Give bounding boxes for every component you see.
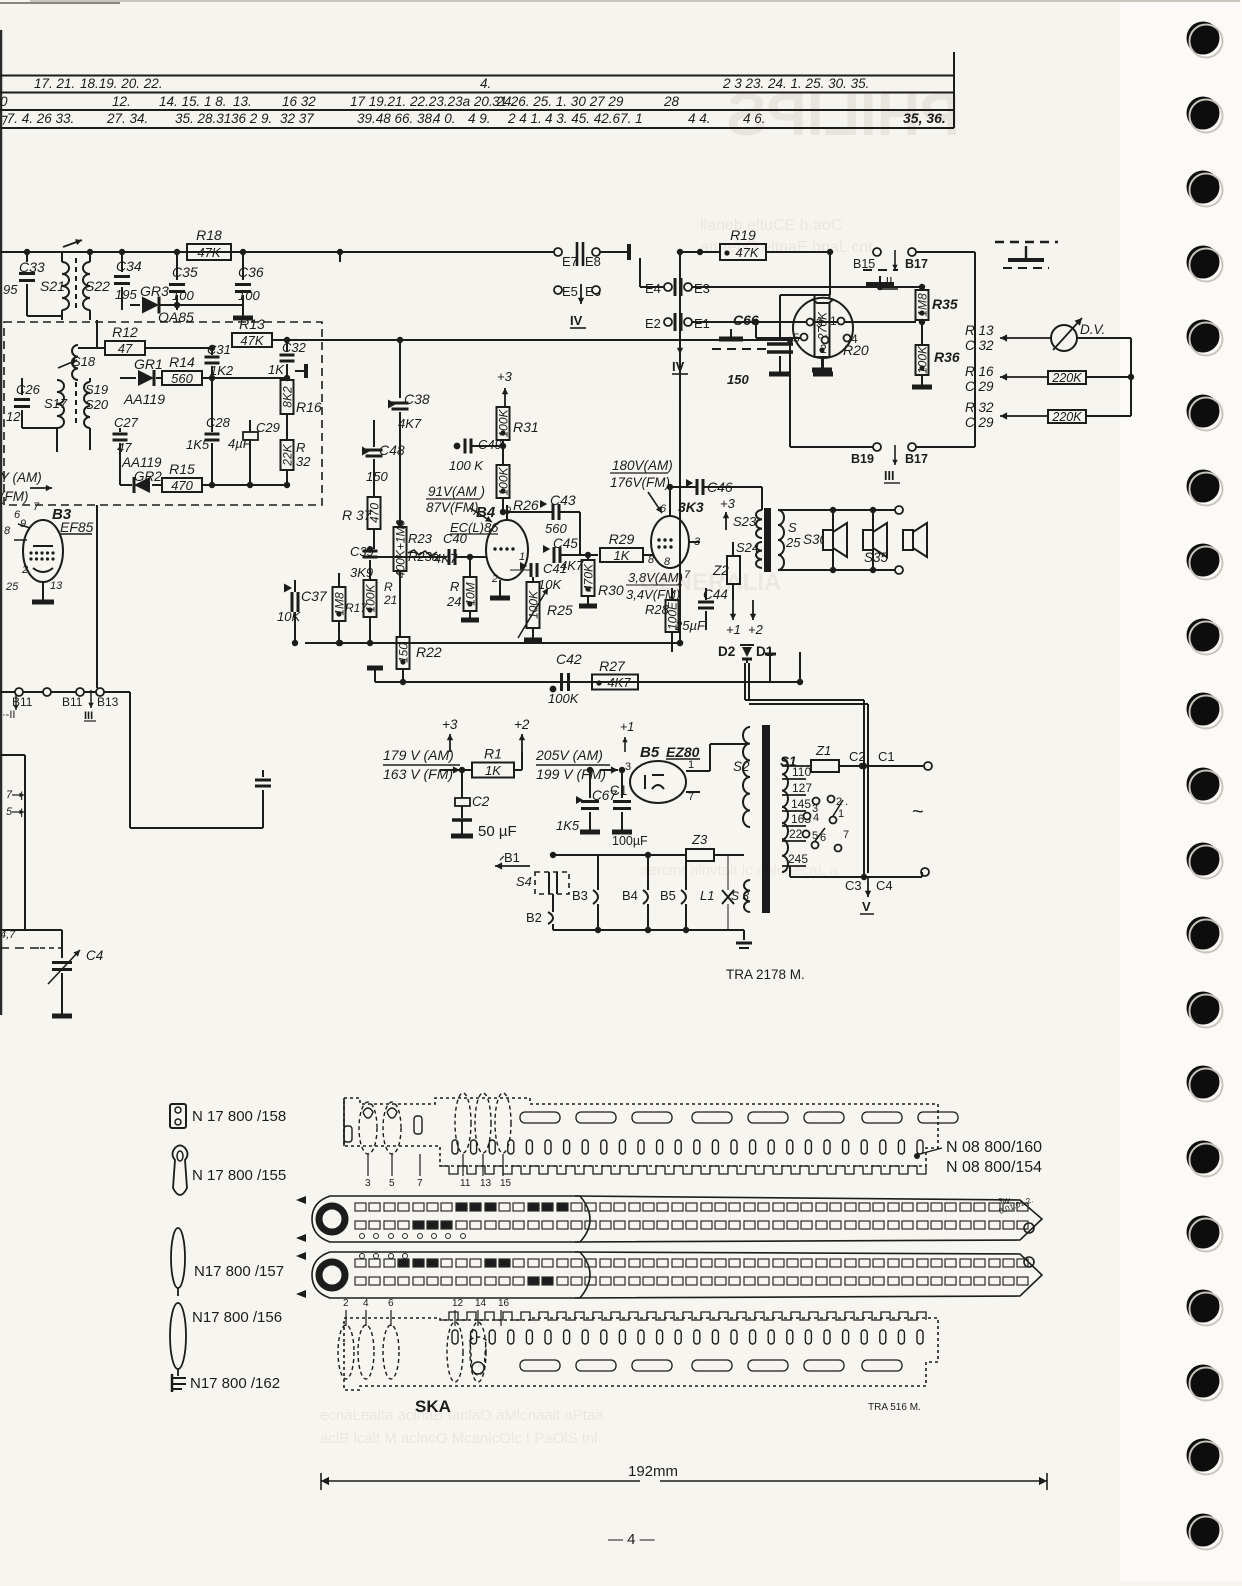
- svg-text:R14: R14: [169, 354, 195, 370]
- svg-text:N17 800 /156: N17 800 /156: [192, 1309, 282, 1326]
- svg-text:S21: S21: [40, 278, 65, 294]
- svg-text:R: R: [450, 579, 459, 594]
- svg-text:4 4.: 4 4.: [688, 111, 711, 126]
- svg-text:50 µF: 50 µF: [478, 823, 517, 840]
- svg-text:47K: 47K: [735, 245, 759, 260]
- svg-text:C 32: C 32: [965, 338, 994, 353]
- svg-text:E4: E4: [645, 281, 661, 296]
- svg-text:25µF: 25µF: [674, 618, 706, 633]
- svg-text:245: 245: [788, 852, 808, 866]
- svg-text:R: R: [296, 440, 305, 455]
- svg-text:1: 1: [830, 314, 837, 328]
- svg-text:21: 21: [383, 593, 397, 607]
- svg-text:12: 12: [6, 409, 21, 424]
- svg-text:4: 4: [363, 1298, 369, 1309]
- svg-text:N17 800 /157: N17 800 /157: [194, 1263, 284, 1280]
- svg-text:C37: C37: [301, 588, 328, 604]
- svg-text:195: 195: [115, 287, 137, 302]
- svg-text:400K+1M6: 400K+1M6: [394, 519, 408, 578]
- svg-text:100: 100: [238, 288, 260, 303]
- svg-text:7: 7: [843, 829, 849, 841]
- svg-text:8: 8: [664, 556, 671, 568]
- svg-text:39.48 66. 38.: 39.48 66. 38.: [357, 111, 436, 126]
- svg-text:3: 3: [365, 1178, 371, 1189]
- svg-text:1: 1: [519, 551, 525, 563]
- svg-text:2 4 1.: 2 4 1.: [507, 111, 542, 126]
- svg-text:16: 16: [498, 1298, 510, 1309]
- svg-text:11: 11: [460, 1178, 471, 1189]
- svg-text:C36: C36: [238, 264, 264, 280]
- svg-text:2: 2: [21, 564, 28, 576]
- svg-text:GR1: GR1: [134, 356, 163, 372]
- svg-text:2 3 23. 24. 1. 25. 30.: 2 3 23. 24. 1. 25. 30. 35.: [722, 76, 869, 91]
- svg-text:B15: B15: [853, 257, 875, 271]
- svg-text:IV: IV: [570, 313, 583, 328]
- svg-text:4: 4: [851, 332, 858, 346]
- svg-text:E8: E8: [585, 254, 601, 269]
- svg-text:Z3: Z3: [691, 832, 708, 847]
- svg-text:R 13: R 13: [965, 323, 994, 338]
- svg-text:28: 28: [663, 94, 680, 109]
- svg-text:B13: B13: [97, 695, 119, 709]
- svg-text:14: 14: [475, 1298, 487, 1309]
- svg-text:+1: +1: [620, 720, 634, 734]
- svg-text:4 3. 45. 42.67. 1: 4 3. 45. 42.67. 1: [545, 111, 643, 126]
- svg-text:199 V (FM): 199 V (FM): [536, 766, 606, 782]
- svg-text:N17 800 /162: N17 800 /162: [190, 1375, 280, 1392]
- svg-text:B11: B11: [62, 695, 83, 709]
- svg-text:2: 2: [343, 1298, 349, 1309]
- svg-text:35. 28.31: 35. 28.31: [175, 111, 231, 126]
- svg-text:47K: 47K: [240, 333, 264, 348]
- svg-text:EZ80: EZ80: [666, 744, 700, 760]
- svg-text:B17: B17: [905, 257, 928, 271]
- svg-text:3: 3: [816, 316, 823, 330]
- svg-text:V: V: [862, 899, 871, 914]
- svg-text:S19: S19: [85, 382, 108, 397]
- svg-text:100: 100: [172, 288, 194, 303]
- svg-text:3,8V(AM): 3,8V(AM): [628, 570, 683, 585]
- svg-text:+1: +1: [726, 622, 741, 637]
- svg-text:C48: C48: [379, 442, 405, 458]
- svg-text:C28: C28: [206, 415, 231, 430]
- svg-text:4µF: 4µF: [228, 436, 252, 451]
- svg-text:C27: C27: [114, 415, 139, 430]
- svg-text:150: 150: [366, 469, 388, 484]
- svg-text:+3: +3: [497, 369, 513, 384]
- svg-text:4.: 4.: [480, 76, 491, 91]
- svg-text:192mm: 192mm: [628, 1463, 678, 1480]
- svg-text:R29: R29: [609, 531, 635, 547]
- svg-text:8K2: 8K2: [281, 386, 295, 408]
- svg-text:TRA 2178 M.: TRA 2178 M.: [726, 967, 805, 982]
- svg-text:S23: S23: [733, 514, 757, 529]
- svg-text:llaneb eltuCE b.aoC: llaneb eltuCE b.aoC: [700, 217, 842, 234]
- svg-text:B1: B1: [504, 850, 520, 865]
- svg-text:S17: S17: [44, 396, 68, 411]
- svg-text:14. 15. 1 8.: 14. 15. 1 8.: [159, 94, 227, 109]
- svg-text:100µF: 100µF: [612, 834, 648, 848]
- svg-text:4,7: 4,7: [0, 929, 16, 941]
- svg-text:B4: B4: [622, 888, 638, 903]
- svg-text:ecnaLealta aclnaB tanlaO aM: ecnaLealta aclnaB tanlaO aMlcnaalt aPtaa: [320, 1407, 604, 1424]
- svg-text:47: 47: [118, 341, 133, 356]
- svg-text:9: 9: [20, 518, 26, 530]
- svg-text:AA119: AA119: [121, 455, 162, 470]
- svg-text:1K5: 1K5: [556, 818, 580, 833]
- svg-text:TRA 516 M.: TRA 516 M.: [868, 1402, 921, 1413]
- svg-text:1K5: 1K5: [186, 437, 210, 452]
- svg-text:+3: +3: [442, 717, 458, 732]
- svg-text:2: 2: [820, 342, 827, 356]
- svg-text:47: 47: [117, 440, 132, 455]
- svg-text:— 4 —: — 4 —: [608, 1531, 655, 1548]
- svg-text:R15: R15: [169, 461, 195, 477]
- svg-text:13: 13: [50, 580, 63, 592]
- svg-text:R26: R26: [513, 497, 539, 513]
- svg-text:22K: 22K: [281, 443, 295, 466]
- svg-text:B19: B19: [851, 452, 874, 466]
- svg-text:R22: R22: [416, 644, 442, 660]
- svg-text:S20: S20: [85, 397, 109, 412]
- svg-text:S35: S35: [864, 550, 889, 565]
- svg-text:C35: C35: [172, 264, 198, 280]
- svg-text:205V (AM): 205V (AM): [535, 747, 603, 763]
- svg-text:S2: S2: [733, 759, 750, 774]
- svg-text:C 29: C 29: [965, 415, 994, 430]
- svg-text:560: 560: [171, 371, 193, 386]
- svg-text:C42: C42: [556, 651, 582, 667]
- svg-text:180V(AM): 180V(AM): [612, 458, 673, 473]
- svg-text:N 08 800/160: N 08 800/160: [946, 1139, 1042, 1156]
- svg-text:17 19.21. 22.23.23a 20. 24.: 17 19.21. 22.23.23a 20. 24.: [350, 94, 515, 109]
- svg-text:47K: 47K: [197, 245, 221, 260]
- svg-text:220K: 220K: [1051, 371, 1082, 385]
- svg-text:AA119: AA119: [123, 391, 165, 407]
- svg-text:D.V.: D.V.: [1080, 322, 1105, 337]
- svg-text:32 37: 32 37: [280, 111, 314, 126]
- svg-text:+3: +3: [720, 496, 736, 511]
- svg-text:N 17 800 /155: N 17 800 /155: [192, 1167, 286, 1184]
- svg-text:15: 15: [500, 1178, 512, 1189]
- svg-text:+2: +2: [514, 717, 530, 732]
- svg-text:4K7: 4K7: [560, 558, 584, 573]
- svg-text:4K7: 4K7: [398, 416, 422, 431]
- svg-text:C31: C31: [207, 342, 231, 357]
- svg-text:12: 12: [452, 1298, 464, 1309]
- svg-text:C32: C32: [282, 340, 307, 355]
- svg-text:1K: 1K: [614, 548, 631, 563]
- svg-text:C2: C2: [849, 749, 866, 764]
- svg-text:C49: C49: [478, 437, 502, 452]
- svg-text:7: 7: [6, 789, 13, 801]
- svg-text:C4: C4: [86, 948, 103, 963]
- svg-text:GR2: GR2: [134, 469, 162, 484]
- svg-text:C2: C2: [472, 794, 490, 809]
- svg-text:III: III: [84, 710, 93, 722]
- svg-text:R23: R23: [408, 531, 433, 546]
- svg-text:C4: C4: [876, 878, 893, 893]
- svg-text:S: S: [788, 520, 797, 535]
- svg-text:Y (AM): Y (AM): [0, 470, 42, 485]
- svg-text:D2: D2: [718, 644, 735, 659]
- svg-text:C33: C33: [19, 259, 45, 275]
- svg-text:S4: S4: [516, 874, 532, 889]
- svg-text:R12: R12: [112, 324, 138, 340]
- svg-text:C38: C38: [404, 391, 430, 407]
- svg-text:91V(AM ): 91V(AM ): [428, 484, 485, 499]
- svg-text:+2: +2: [748, 622, 764, 637]
- svg-text:N 17 800 /158: N 17 800 /158: [192, 1108, 286, 1125]
- svg-text:1K: 1K: [485, 763, 502, 778]
- svg-text:C44: C44: [703, 587, 728, 602]
- svg-text:~: ~: [912, 801, 924, 823]
- svg-text:R31: R31: [513, 419, 539, 435]
- svg-text:1K: 1K: [268, 362, 285, 377]
- svg-text:560: 560: [545, 521, 567, 536]
- svg-text:R 32: R 32: [965, 400, 994, 415]
- svg-text:176V(FM): 176V(FM): [610, 475, 670, 490]
- svg-text:35, 36.: 35, 36.: [903, 110, 946, 126]
- svg-text:C34: C34: [116, 258, 142, 274]
- svg-text:27. 34.: 27. 34.: [106, 111, 148, 126]
- svg-text:GR3: GR3: [140, 283, 169, 299]
- svg-text:R27: R27: [599, 658, 626, 674]
- svg-text:R36: R36: [934, 349, 960, 365]
- svg-text:8: 8: [4, 525, 11, 537]
- svg-text:N 08 800/154: N 08 800/154: [946, 1159, 1042, 1176]
- svg-text:2: 2: [491, 573, 498, 585]
- svg-text:C45: C45: [553, 536, 578, 551]
- svg-text:100 K: 100 K: [449, 458, 484, 473]
- svg-text:C29: C29: [256, 420, 280, 435]
- svg-text:(FM): (FM): [0, 489, 28, 504]
- svg-text:6: 6: [660, 503, 667, 515]
- svg-text:7: 7: [33, 501, 40, 513]
- svg-text:17. 21.: 17. 21.: [34, 76, 75, 91]
- svg-text:1: 1: [838, 808, 844, 820]
- svg-text:R28: R28: [645, 602, 670, 617]
- svg-text:SKA: SKA: [415, 1397, 451, 1416]
- svg-text:32: 32: [296, 454, 311, 469]
- svg-text:3: 3: [625, 761, 631, 773]
- svg-text:R25: R25: [547, 602, 573, 618]
- svg-text:16 32: 16 32: [282, 94, 316, 109]
- svg-text:IV: IV: [672, 359, 685, 374]
- svg-text:D1: D1: [756, 644, 774, 659]
- svg-text:4: 4: [813, 812, 819, 824]
- svg-text:E1: E1: [694, 316, 710, 331]
- svg-text:4 6.: 4 6.: [743, 111, 766, 126]
- svg-text:5: 5: [389, 1178, 395, 1189]
- svg-text:3K3: 3K3: [678, 499, 704, 515]
- svg-text:S24: S24: [736, 540, 759, 555]
- svg-text:B5: B5: [640, 744, 660, 761]
- svg-text:127: 127: [792, 781, 812, 795]
- svg-text:12.: 12.: [112, 94, 131, 109]
- svg-text:4 0.: 4 0.: [433, 111, 456, 126]
- svg-text:C1: C1: [610, 783, 627, 798]
- svg-text:10K: 10K: [538, 577, 562, 592]
- svg-text:E3: E3: [694, 281, 710, 296]
- svg-text:7: 7: [417, 1178, 423, 1189]
- svg-text:24: 24: [446, 594, 461, 609]
- svg-text:95: 95: [3, 282, 18, 297]
- svg-text:110: 110: [792, 765, 811, 779]
- svg-text:R13: R13: [239, 316, 265, 332]
- svg-text:R35: R35: [932, 296, 958, 312]
- svg-text:25: 25: [5, 581, 19, 593]
- svg-text:R 16: R 16: [965, 364, 994, 379]
- svg-text:E7: E7: [562, 254, 578, 269]
- svg-text:R18: R18: [196, 227, 222, 243]
- svg-text:Z2: Z2: [712, 563, 729, 578]
- svg-text:100K: 100K: [548, 691, 580, 706]
- svg-text:aclB lcalt M aclncO Mcanlc: aclB lcalt M aclncO McanlcOlc t PaOlS tn…: [320, 1430, 598, 1447]
- svg-text:R1: R1: [484, 746, 502, 762]
- svg-text:C26: C26: [16, 382, 41, 397]
- svg-text:25: 25: [785, 535, 801, 550]
- svg-text:⁊7. 4. 26 33.: ⁊7. 4. 26 33.: [0, 111, 74, 126]
- svg-text:0: 0: [0, 94, 8, 109]
- svg-text:7: 7: [684, 569, 691, 581]
- svg-text:C3: C3: [845, 878, 862, 893]
- svg-text:10K: 10K: [277, 609, 301, 624]
- svg-text:B5: B5: [660, 888, 676, 903]
- svg-text:36 2 9.: 36 2 9.: [231, 111, 272, 126]
- svg-text:18.19. 20. 22.: 18.19. 20. 22.: [80, 76, 163, 91]
- svg-text:S22: S22: [85, 278, 110, 294]
- svg-text:4K7: 4K7: [607, 675, 631, 690]
- svg-text:EF85: EF85: [60, 519, 94, 535]
- svg-text:145: 145: [791, 797, 811, 811]
- svg-text:L1: L1: [700, 888, 714, 903]
- svg-text:C 29: C 29: [965, 379, 994, 394]
- svg-text:31 26. 25. 1. 30 27: 31 26. 25. 1. 30 27 29: [492, 94, 624, 109]
- svg-text:4 9.: 4 9.: [468, 111, 491, 126]
- svg-text:150: 150: [727, 372, 749, 387]
- svg-text:5: 5: [6, 806, 13, 818]
- svg-text:13: 13: [480, 1178, 492, 1189]
- svg-text:B2: B2: [526, 910, 542, 925]
- svg-text:13.: 13.: [233, 94, 252, 109]
- svg-text:6: 6: [388, 1298, 394, 1309]
- svg-text:Z1: Z1: [815, 743, 831, 758]
- svg-text:E5: E5: [562, 284, 578, 299]
- svg-text:·-II: ·-II: [2, 709, 15, 721]
- svg-text:R19: R19: [730, 227, 756, 243]
- svg-text:E2: E2: [645, 316, 661, 331]
- svg-text:470: 470: [171, 478, 193, 493]
- svg-text:C1: C1: [878, 749, 895, 764]
- svg-text:C43: C43: [550, 492, 576, 508]
- svg-text:R30: R30: [598, 582, 624, 598]
- svg-text:179 V (AM): 179 V (AM): [383, 747, 454, 763]
- svg-text:B17: B17: [905, 452, 928, 466]
- svg-text:163 V (FM): 163 V (FM): [383, 766, 453, 782]
- svg-text:B3: B3: [572, 888, 588, 903]
- svg-text:R16: R16: [296, 399, 322, 415]
- svg-text:1: 1: [688, 759, 694, 771]
- svg-text:220K: 220K: [1051, 410, 1082, 424]
- svg-text:R 37: R 37: [342, 507, 373, 523]
- svg-text:III: III: [884, 469, 894, 483]
- svg-text:R: R: [384, 580, 393, 594]
